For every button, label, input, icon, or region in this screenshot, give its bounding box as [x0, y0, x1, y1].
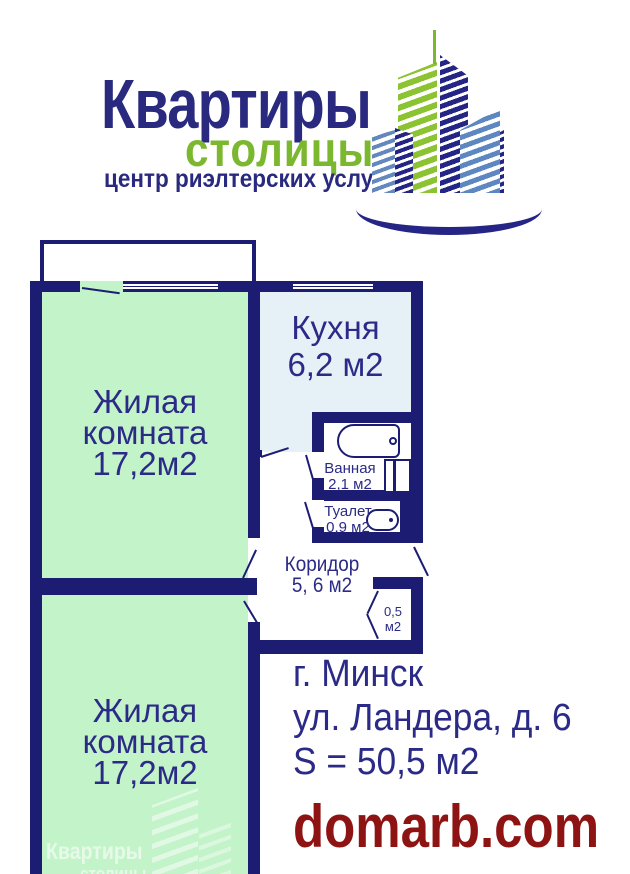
- corridor-label: Коридор 5, 6 м2: [259, 554, 385, 596]
- wall-segment: [248, 281, 260, 538]
- wall-segment: [312, 412, 324, 452]
- room-area: 2,1 м2: [314, 477, 386, 493]
- room-name: Жилая: [42, 386, 248, 417]
- room-name: комната: [42, 417, 248, 448]
- room-area: 5, 6 м2: [259, 575, 385, 596]
- address-city: г. Минск: [293, 652, 572, 696]
- wall-segment: [248, 622, 260, 874]
- closet-label: 0,5 м2: [375, 604, 411, 634]
- watermark-building-icon: [152, 788, 198, 874]
- listing-image: Квартиры столицы центр риэлтерских услуг: [0, 0, 630, 874]
- room-name: Коридор: [259, 554, 385, 575]
- room-name: Кухня: [260, 309, 411, 346]
- room-area: 6,2 м2: [260, 346, 411, 383]
- toilet-label: Туалет 0,9 м2: [314, 504, 382, 536]
- washing-machine-door-icon: [393, 461, 396, 491]
- washing-machine-icon: [384, 459, 411, 493]
- watermark-brand-line2: столицы: [80, 864, 146, 874]
- room-area: 0,5: [375, 604, 411, 619]
- room-name: Жилая: [42, 695, 248, 726]
- door-leaf-toilet: [304, 502, 314, 528]
- wall-segment: [312, 412, 423, 423]
- living-room-1-label: Жилая комната 17,2м2: [42, 386, 248, 479]
- window-glyph: [123, 281, 218, 292]
- door-leaf-bath: [305, 455, 314, 480]
- address-street: ул. Ландера, д. 6: [293, 696, 572, 740]
- bath-label: Ванная 2,1 м2: [314, 461, 386, 493]
- address-block: г. Минск ул. Ландера, д. 6 S = 50,5 м2: [293, 652, 572, 784]
- brand-watermark: Квартиры столицы: [42, 780, 248, 874]
- wall-segment: [400, 501, 411, 532]
- wall-segment: [411, 577, 423, 654]
- bathtub-icon: [337, 424, 400, 458]
- room-area: 0,9 м2: [314, 520, 382, 536]
- kitchen-area-ext: [260, 412, 312, 452]
- door-leaf-entrance: [413, 547, 429, 577]
- room-area: 17,2м2: [42, 448, 248, 479]
- window-glyph: [293, 281, 373, 292]
- room-name: Ванная: [314, 461, 386, 477]
- balcony-outline: [40, 240, 256, 286]
- room-name: комната: [42, 726, 248, 757]
- site-watermark: domarb.com: [293, 797, 599, 857]
- watermark-brand-line1: Квартиры: [46, 838, 142, 865]
- wall-segment: [30, 578, 257, 595]
- toilet-flush-icon: [389, 518, 393, 522]
- room-name: Туалет: [314, 504, 382, 520]
- address-total-area: S = 50,5 м2: [293, 740, 572, 784]
- bathtub-drain-icon: [389, 437, 397, 445]
- kitchen-label: Кухня 6,2 м2: [260, 309, 411, 383]
- room-area: м2: [375, 619, 411, 634]
- watermark-building-icon: [199, 818, 231, 874]
- living-room-2-label: Жилая комната 17,2м2: [42, 695, 248, 788]
